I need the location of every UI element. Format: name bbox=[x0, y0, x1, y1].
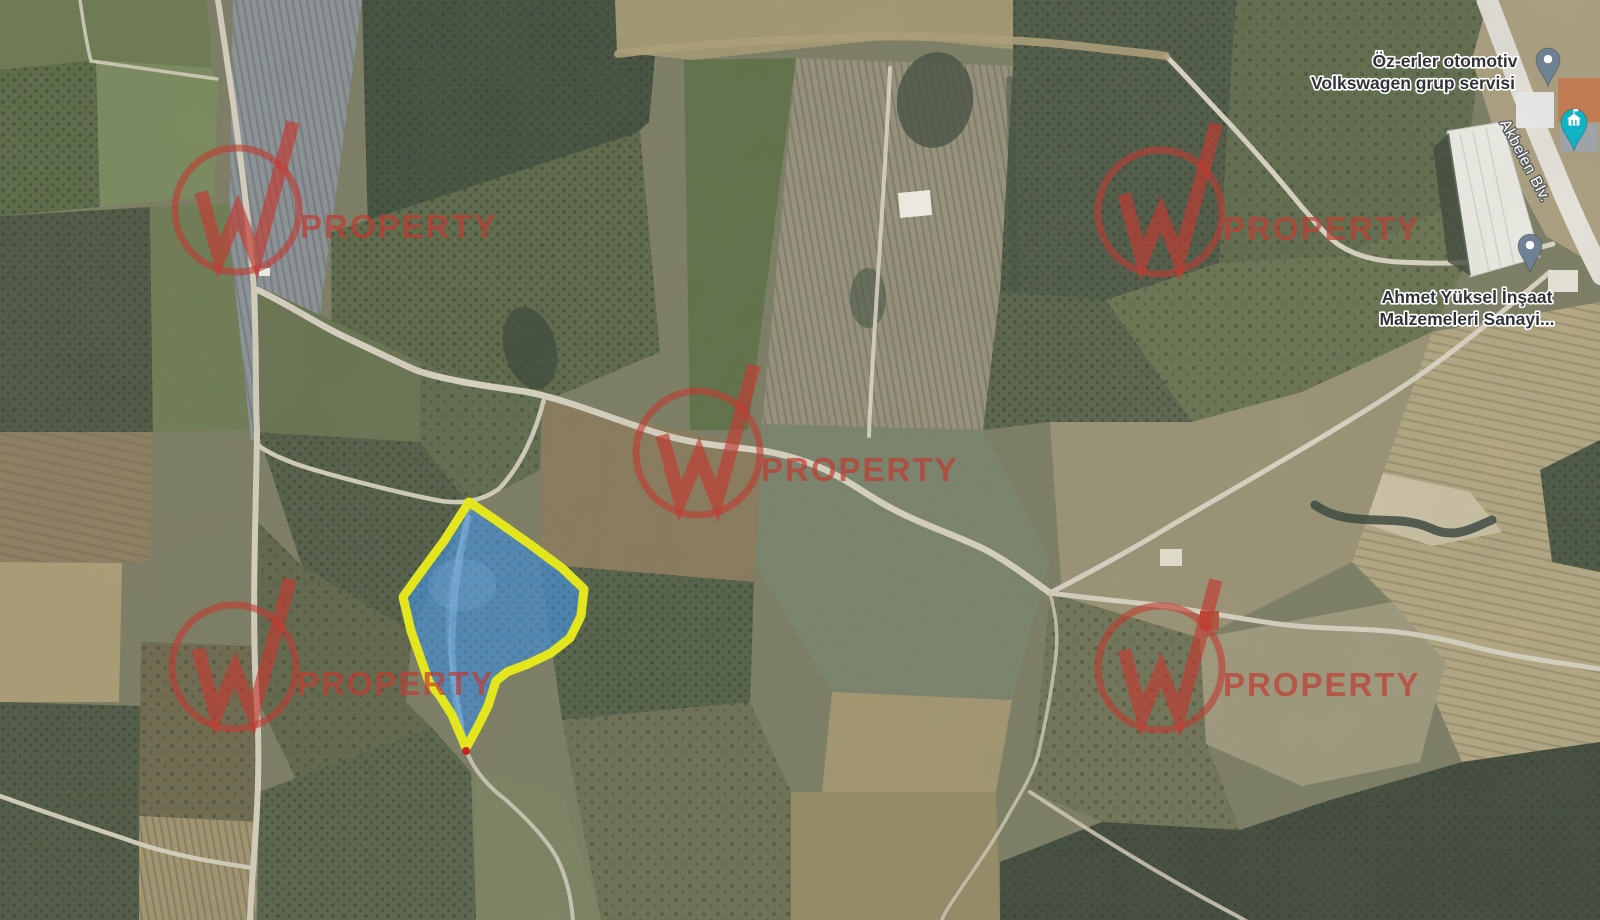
watermark-text: PROPERTY bbox=[1223, 666, 1421, 703]
watermark-text: PROPERTY bbox=[300, 208, 498, 245]
flag-pole bbox=[1573, 109, 1574, 114]
poi-label-ahmet-yuksel[interactable]: Ahmet Yüksel İnşaat bbox=[1382, 287, 1553, 307]
satellite-map[interactable]: PROPERTYPROPERTYPROPERTYPROPERTYPROPERTY… bbox=[0, 0, 1600, 920]
building-base bbox=[1569, 119, 1580, 126]
building-column-gap bbox=[1571, 120, 1572, 125]
watermark-text: PROPERTY bbox=[761, 451, 959, 488]
parcel-highlight-blob bbox=[428, 559, 496, 611]
flag bbox=[1575, 109, 1579, 111]
poi-label-ahmet-yuksel[interactable]: Malzemeleri Sanayi... bbox=[1379, 309, 1554, 329]
building-column-gap bbox=[1575, 120, 1576, 125]
parcel-tip-dot bbox=[462, 747, 470, 755]
pin-center-dot bbox=[1544, 55, 1552, 63]
pin-center-dot bbox=[1526, 241, 1534, 249]
poi-label-ozerler-otomotiv[interactable]: Öz-erler otomotiv bbox=[1373, 51, 1518, 71]
map-viewport[interactable]: PROPERTYPROPERTYPROPERTYPROPERTYPROPERTY… bbox=[0, 0, 1600, 920]
poi-label-ozerler-otomotiv[interactable]: Volkswagen grup servisi bbox=[1311, 73, 1515, 93]
watermark-text: PROPERTY bbox=[297, 665, 495, 702]
watermark-text: PROPERTY bbox=[1223, 210, 1421, 247]
